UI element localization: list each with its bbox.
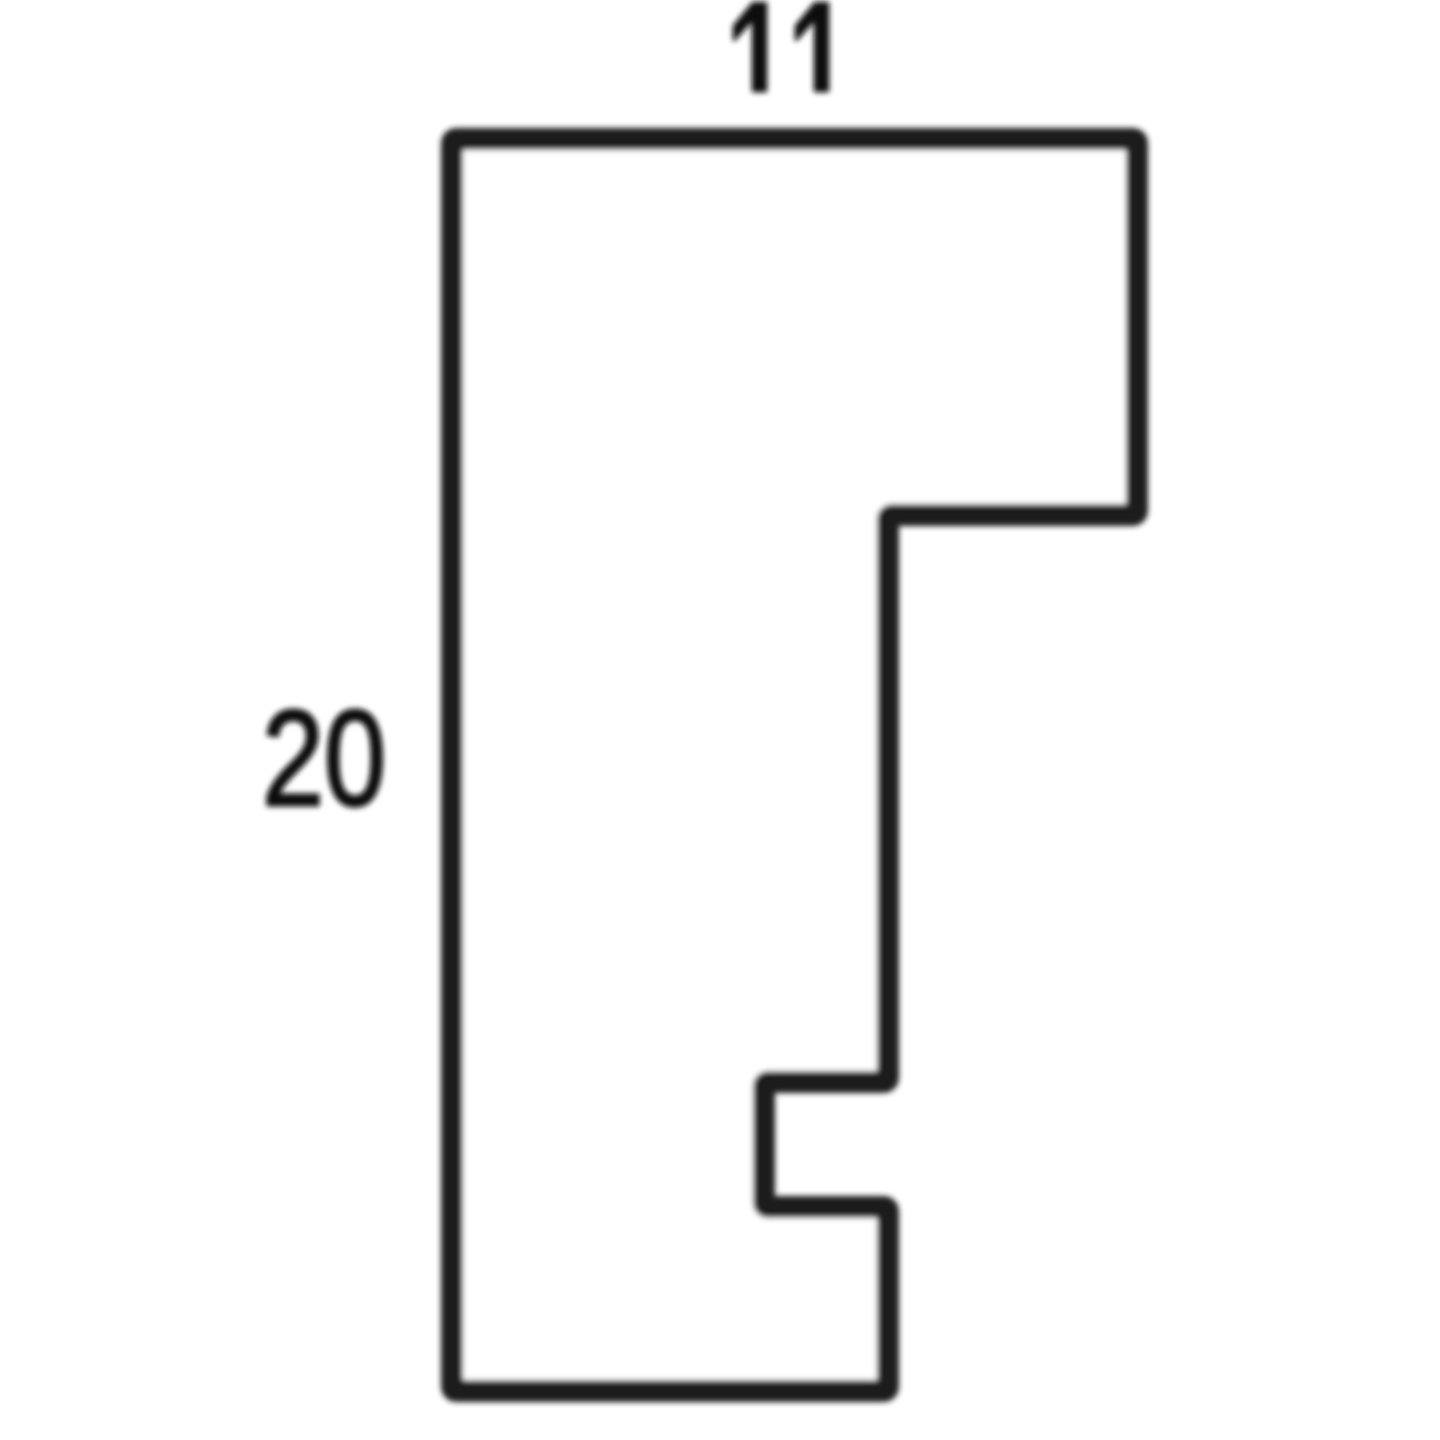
svg-text:20: 20 (262, 683, 386, 835)
